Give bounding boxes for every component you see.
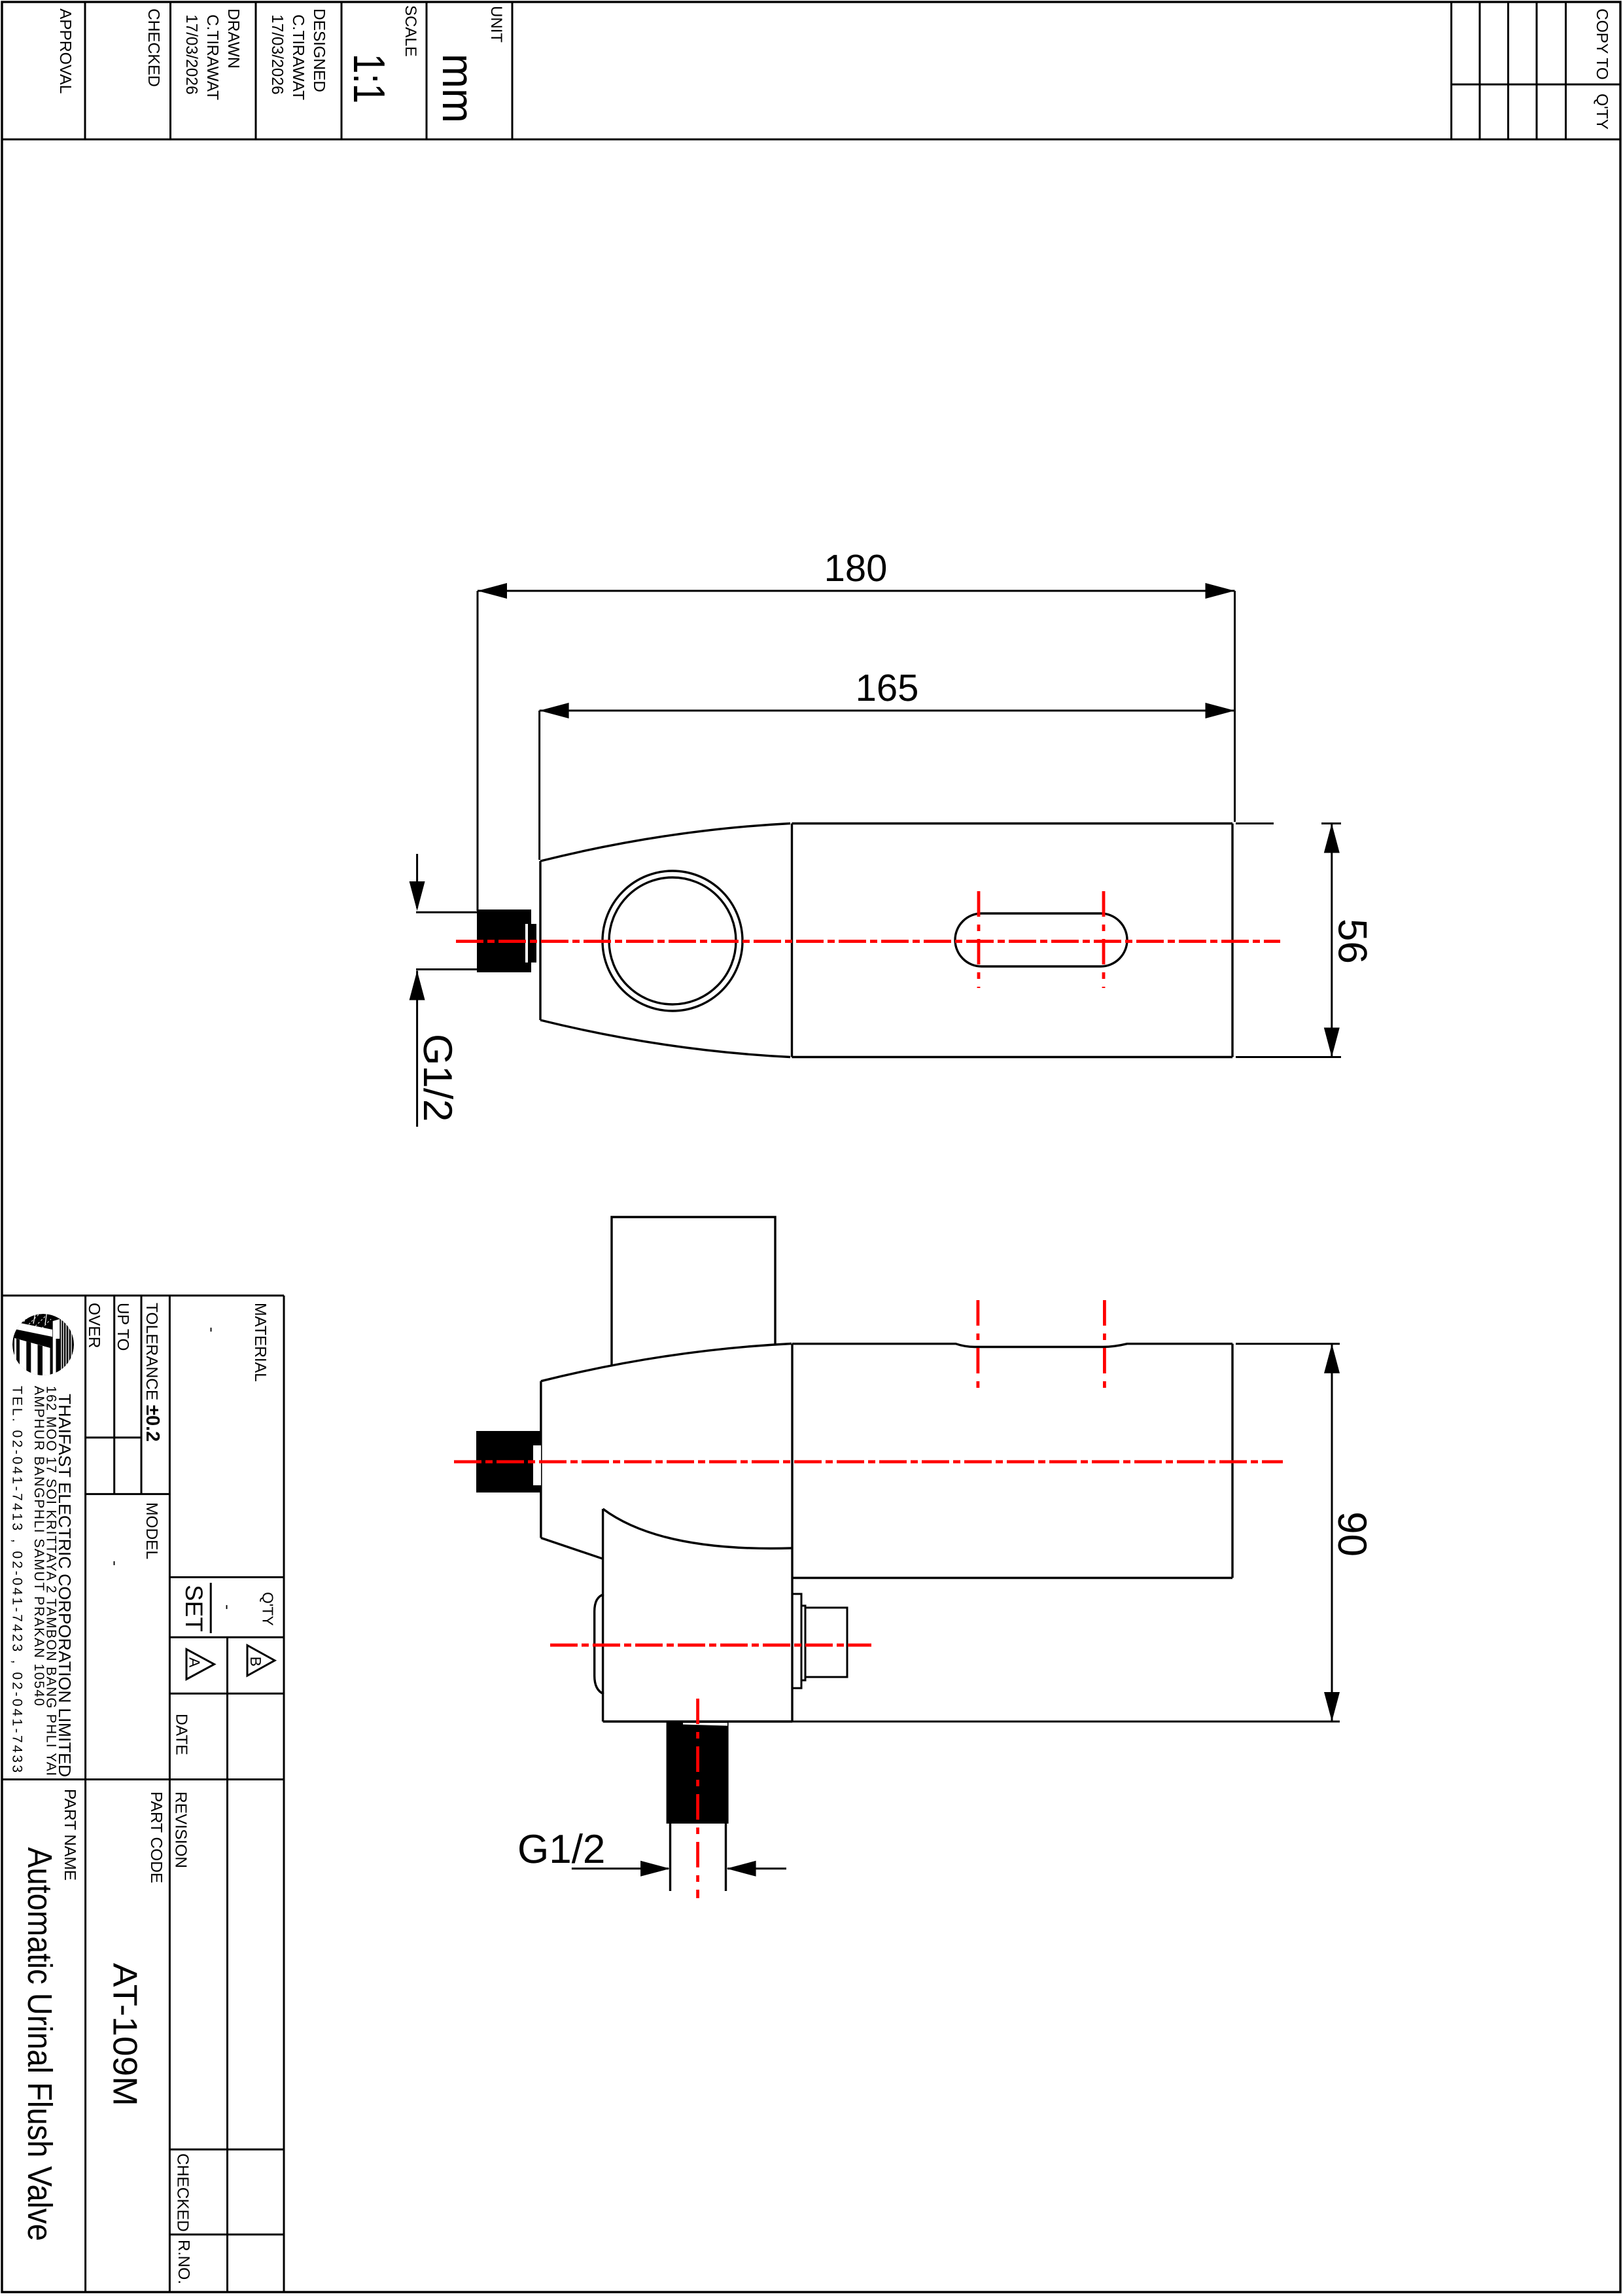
svg-text:mm: mm [433, 54, 483, 123]
svg-text:-: - [218, 1604, 236, 1610]
svg-text:TEL. 02-041-7413 , 02-041-7423: TEL. 02-041-7413 , 02-041-7423 , 02-041-… [10, 1386, 25, 1773]
svg-text:PART NAME: PART NAME [61, 1789, 79, 1881]
svg-text:MATERIAL: MATERIAL [251, 1303, 269, 1382]
svg-text:165: 165 [856, 667, 919, 709]
svg-text:C.TIRAWAT: C.TIRAWAT [203, 14, 221, 100]
svg-text:17/03/2026: 17/03/2026 [183, 14, 200, 95]
svg-text:PART CODE: PART CODE [147, 1792, 165, 1883]
svg-text:Q'TY: Q'TY [260, 1592, 277, 1626]
svg-text:UP TO: UP TO [114, 1303, 131, 1351]
svg-text:G1/2: G1/2 [517, 1827, 605, 1872]
svg-text:CHECKED: CHECKED [145, 9, 162, 87]
svg-text:180: 180 [824, 547, 888, 590]
svg-text:APPROVAL: APPROVAL [56, 9, 74, 94]
svg-text:MODEL: MODEL [143, 1502, 160, 1559]
svg-text:17/03/2026: 17/03/2026 [268, 14, 286, 95]
svg-text:Q'TY: Q'TY [1593, 94, 1611, 130]
svg-text:-: - [203, 1327, 220, 1332]
svg-text:AT-109M: AT-109M [106, 1963, 144, 2106]
svg-text:DATE: DATE [172, 1714, 190, 1756]
svg-text:Automatic Urinal Flush Valve: Automatic Urinal Flush Valve [20, 1847, 59, 2241]
svg-text:90: 90 [1329, 1511, 1374, 1557]
svg-text:TOLERANCE ±0.2: TOLERANCE ±0.2 [142, 1303, 163, 1441]
svg-text:A: A [186, 1657, 203, 1668]
svg-text:-: - [106, 1561, 124, 1566]
svg-text:CHECKED: CHECKED [174, 2153, 192, 2232]
svg-text:B: B [247, 1657, 264, 1667]
svg-text:UNIT: UNIT [487, 6, 505, 43]
svg-text:R.NO.: R.NO. [175, 2240, 192, 2284]
svg-text:1:1: 1:1 [344, 54, 394, 103]
svg-text:56: 56 [1330, 919, 1375, 964]
svg-text:DESIGNED: DESIGNED [310, 9, 328, 92]
svg-text:C.TIRAWAT: C.TIRAWAT [289, 14, 307, 100]
svg-text:COPY TO: COPY TO [1593, 9, 1611, 80]
svg-text:DRAWN: DRAWN [224, 9, 242, 69]
svg-text:REVISION: REVISION [171, 1792, 189, 1868]
svg-text:SET: SET [181, 1585, 207, 1632]
svg-text:SCALE: SCALE [402, 5, 419, 57]
svg-text:G1/2: G1/2 [415, 1034, 460, 1122]
svg-text:OVER: OVER [85, 1303, 103, 1348]
